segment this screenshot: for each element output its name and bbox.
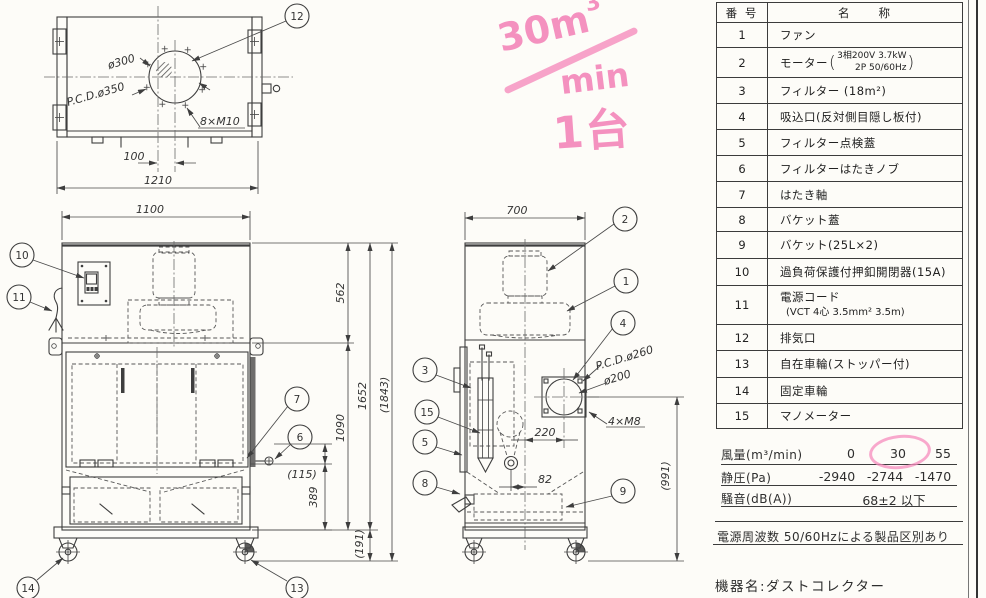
svg-text:ø300: ø300 [105, 52, 136, 72]
power-cord [49, 288, 63, 332]
svg-text:ø200: ø200 [601, 367, 632, 388]
svg-text:(991): (991) [659, 461, 672, 491]
table-row: 1 ファン [717, 23, 963, 48]
rule [713, 544, 963, 545]
svg-text:1090: 1090 [334, 414, 347, 442]
balloon-6: 6 [275, 425, 312, 459]
balloon-1: 1 [567, 269, 638, 311]
balloon-2: 2 [548, 207, 637, 271]
table-row: 5 フィルター点検蓋 [717, 130, 963, 156]
part-name: 過負荷保護付押釦開閉器(15A) [768, 259, 963, 286]
table-row: 7 はたき軸 [717, 182, 963, 208]
part-name: バケット蓋 [768, 208, 963, 232]
pressure-value-3: -1470 [913, 469, 953, 484]
svg-text:1210: 1210 [144, 174, 172, 187]
part-no: 12 [717, 325, 768, 351]
part-no: 2 [717, 48, 768, 78]
note-quantity: 1台 [552, 107, 634, 156]
part-no: 10 [717, 259, 768, 286]
svg-text:P.C.D.ø350: P.C.D.ø350 [65, 80, 126, 109]
part-no: 7 [717, 182, 768, 208]
part-no: 15 [717, 404, 768, 429]
part-no: 1 [717, 23, 768, 48]
caster-side-left [462, 538, 486, 564]
table-row: 14 固定車輪 [717, 378, 963, 404]
label-8xM10: 8×M10 [187, 108, 245, 128]
part-name: モーター ( 3相200V 3.7kW 2P 50/60Hz ) [768, 48, 963, 78]
balloon-8: 8 [413, 471, 460, 495]
control-box [78, 262, 110, 305]
paren-open: ( [828, 53, 837, 73]
front-view: 1100 [7, 203, 398, 598]
dim-700: 700 [465, 204, 585, 240]
dim-1100: 1100 [62, 203, 250, 240]
svg-text:1: 1 [623, 276, 630, 288]
table-row: 8 バケット蓋 [717, 208, 963, 232]
part-name: 固定車輪 [768, 378, 963, 404]
svg-text:220: 220 [535, 426, 556, 439]
part-no: 5 [717, 130, 768, 156]
svg-text:8×M10: 8×M10 [200, 115, 240, 128]
svg-text:700: 700 [507, 204, 528, 217]
rule [721, 506, 957, 507]
dim-100: 100 [124, 150, 197, 163]
front-body [62, 243, 250, 530]
balloon-14: 14 [17, 558, 63, 598]
frequency-note: 電源周波数 50/60Hzによる製品区別あり [717, 528, 949, 545]
svg-text:3: 3 [422, 365, 429, 377]
parts-header-name: 名 称 [768, 3, 963, 23]
svg-text:6: 6 [297, 432, 304, 444]
label-dia200: ø200 [579, 367, 632, 393]
pressure-value-2: -2744 [865, 469, 905, 484]
part-name: マノメーター [768, 404, 963, 429]
part-no: 6 [717, 156, 768, 182]
part-name: ファン [768, 23, 963, 48]
table-row: 6 フィルターはたきノブ [717, 156, 963, 182]
flow-30-highlight-circle [867, 432, 932, 472]
part-name-text: 電源コード [780, 290, 962, 306]
svg-text:13: 13 [290, 583, 303, 595]
part-no: 13 [717, 351, 768, 378]
side-view: 700 [413, 204, 684, 564]
table-row: 2 モーター ( 3相200V 3.7kW 2P 50/60Hz ) [717, 48, 963, 78]
flow-value-1: 0 [841, 446, 861, 461]
caster-front-left [56, 538, 80, 564]
balloon-13: 13 [251, 560, 308, 598]
motor-spec-line2: 2P 50/60Hz [837, 63, 906, 74]
filter-door-side [454, 347, 514, 472]
svg-text:7: 7 [294, 394, 301, 406]
svg-text:5: 5 [422, 437, 429, 449]
pressure-label: 静圧(Pa) [721, 469, 771, 486]
noise-label: 騒音(dB(A)) [721, 490, 792, 507]
caster-front-right [233, 538, 257, 564]
rule [721, 464, 957, 465]
balloon-5: 5 [413, 430, 462, 455]
part-name: 自在車輪(ストッパー付) [768, 351, 963, 378]
filter-door [66, 352, 256, 467]
svg-text:(1843): (1843) [378, 377, 391, 414]
part-name: フィルターはたきノブ [768, 156, 963, 182]
flow-label: 風量(m³/min) [721, 446, 803, 463]
pressure-value-1: -2940 [817, 469, 857, 484]
parts-table: 番 号 名 称 1 ファン 2 モーター ( 3相200V 3.7kW 2P 5… [716, 2, 963, 429]
svg-text:15: 15 [420, 407, 433, 419]
motor-hidden-front [128, 247, 233, 343]
sheet-border [968, 0, 978, 598]
table-row: 11 電源コード (VCT 4心 3.5mm² 3.5m) [717, 286, 963, 325]
svg-text:9: 9 [620, 486, 627, 498]
svg-text:82: 82 [538, 473, 552, 486]
svg-text:100: 100 [124, 150, 145, 163]
svg-text:(115): (115) [287, 468, 317, 481]
dim-220: 220 [511, 426, 578, 440]
parts-header: 番 号 名 称 [717, 3, 963, 23]
rule [721, 485, 957, 486]
balloon-9: 9 [566, 479, 635, 507]
part-no: 4 [717, 104, 768, 130]
top-knob [262, 84, 271, 93]
part-name: 吸込口(反対側目隠し板付) [768, 104, 963, 130]
rule [715, 521, 963, 522]
paren-close: ) [907, 53, 916, 73]
svg-text:12: 12 [290, 11, 303, 23]
flow-value-3: 55 [931, 446, 955, 461]
svg-text:1652: 1652 [356, 382, 369, 410]
balloon-11: 11 [7, 285, 52, 311]
svg-text:10: 10 [15, 250, 28, 262]
svg-text:(191): (191) [353, 529, 366, 559]
caster-side-right [564, 538, 588, 564]
table-row: 9 バケット(25L×2) [717, 232, 963, 259]
motor-spec-line1: 3相200V 3.7kW [837, 51, 906, 62]
svg-text:2: 2 [622, 214, 629, 226]
part-no: 14 [717, 378, 768, 404]
table-row: 12 排気口 [717, 325, 963, 351]
note-denominator: min [558, 58, 631, 99]
balloon-10: 10 [10, 243, 84, 278]
part-no: 11 [717, 286, 768, 325]
table-row: 15 マノメーター [717, 404, 963, 429]
parts-header-no: 番 号 [717, 3, 768, 23]
device-name: 機器名:ダストコレクター [715, 575, 886, 595]
table-row: 10 過負荷保護付押釦開閉器(15A) [717, 259, 963, 286]
svg-text:1100: 1100 [136, 203, 164, 216]
part-no: 9 [717, 232, 768, 259]
part-no: 3 [717, 78, 768, 104]
svg-text:11: 11 [12, 292, 25, 304]
svg-text:8: 8 [422, 478, 429, 490]
svg-text:389: 389 [307, 487, 320, 508]
top-view: 100 1210 ø300 P.C.D.ø350 8×M10 12 [44, 4, 309, 194]
table-row: 3 フィルター (18m²) [717, 78, 963, 104]
label-4xM8: 4×M8 [589, 412, 645, 428]
base-frame-front [54, 527, 258, 538]
svg-text:14: 14 [21, 583, 35, 595]
part-name: フィルター点検蓋 [768, 130, 963, 156]
label-pcd350: P.C.D.ø350 [65, 80, 146, 109]
dim-1210: 1210 [57, 141, 258, 194]
dim-115-389: (115) 389 [250, 444, 332, 530]
dim-82: 82 [499, 470, 552, 491]
balloon-3: 3 [413, 358, 471, 388]
manometer-instrument [478, 345, 493, 472]
part-no: 8 [717, 208, 768, 232]
bucket-side [452, 472, 585, 523]
part-name: 排気口 [768, 325, 963, 351]
bucket-compartment-front [62, 470, 250, 524]
svg-text:4×M8: 4×M8 [608, 415, 641, 428]
drawing-sheet: 100 1210 ø300 P.C.D.ø350 8×M10 12 [0, 0, 986, 598]
part-name: フィルター (18m²) [768, 78, 963, 104]
svg-text:4: 4 [620, 318, 627, 330]
part-name: 電源コード (VCT 4心 3.5mm² 3.5m) [768, 286, 963, 325]
table-row: 13 自在車輪(ストッパー付) [717, 351, 963, 378]
table-row: 4 吸込口(反対側目隠し板付) [717, 104, 963, 130]
cord-spec: (VCT 4心 3.5mm² 3.5m) [780, 306, 962, 320]
part-name: はたき軸 [768, 182, 963, 208]
svg-text:562: 562 [334, 283, 347, 304]
part-name: バケット(25L×2) [768, 232, 963, 259]
part-name-text: モーター [780, 55, 828, 71]
